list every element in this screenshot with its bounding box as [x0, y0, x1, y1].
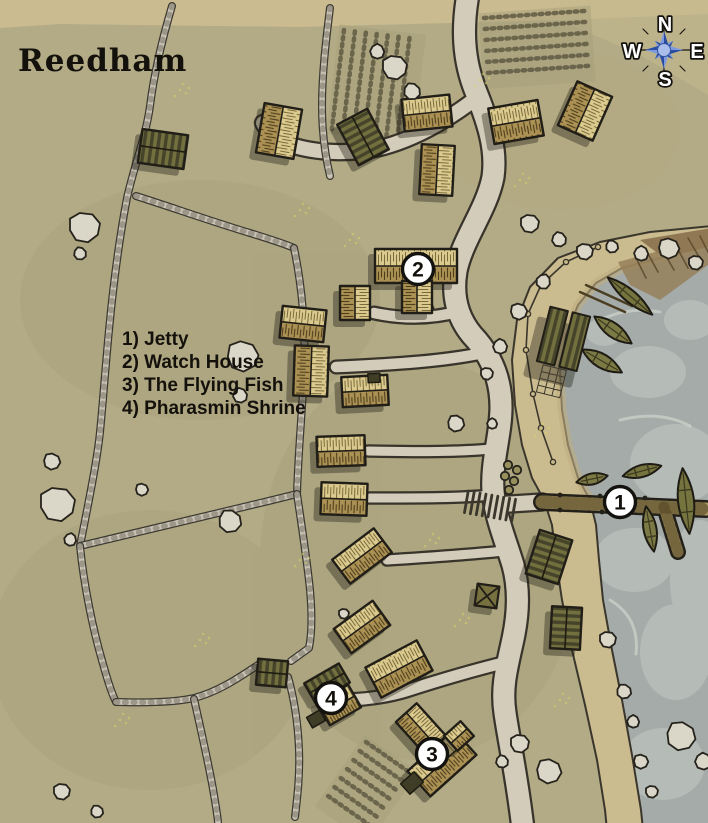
- building: [368, 373, 380, 383]
- compass-east-label: E: [690, 41, 703, 63]
- compass-north-label: N: [658, 14, 672, 36]
- rock: [600, 632, 616, 648]
- map-title: Reedham: [18, 43, 187, 79]
- rock: [511, 735, 529, 753]
- marker-watch-house: 2: [403, 254, 434, 285]
- legend-item-jetty: 1) Jetty: [122, 329, 189, 350]
- rock: [383, 56, 407, 79]
- map-canvas: 1 2 3 4: [0, 0, 708, 823]
- marker-jetty-number: 1: [614, 492, 626, 515]
- marker-jetty: 1: [605, 487, 636, 518]
- rock: [54, 784, 70, 800]
- building: [286, 345, 329, 403]
- building: [394, 95, 452, 139]
- building: [395, 281, 432, 320]
- rock: [339, 609, 349, 619]
- road: [368, 449, 491, 452]
- building: [131, 129, 188, 176]
- legend-item-pharasmin-shrine: 4) Pharasmin Shrine: [122, 398, 306, 419]
- legend-item-flying-fish: 3) The Flying Fish: [122, 375, 284, 396]
- crop-field: [479, 6, 596, 90]
- marker-pharasmin-shrine: 4: [316, 683, 347, 714]
- building: [333, 286, 370, 327]
- compass-west-label: W: [623, 41, 642, 63]
- marker-flying-fish: 3: [417, 739, 448, 770]
- marker-watch-house-number: 2: [412, 259, 424, 282]
- compass-south-label: S: [658, 69, 671, 91]
- building: [309, 435, 365, 474]
- rock: [481, 368, 493, 380]
- legend-item-watch-house: 2) Watch House: [122, 352, 264, 373]
- building: [313, 482, 367, 523]
- building: [543, 606, 582, 657]
- rock: [646, 786, 658, 798]
- building: [272, 306, 326, 350]
- rock: [521, 215, 539, 233]
- rock: [577, 244, 593, 260]
- marker-flying-fish-number: 3: [426, 744, 438, 767]
- marker-pharasmin-shrine-number: 4: [325, 688, 337, 711]
- rock: [689, 256, 703, 270]
- building: [412, 144, 455, 203]
